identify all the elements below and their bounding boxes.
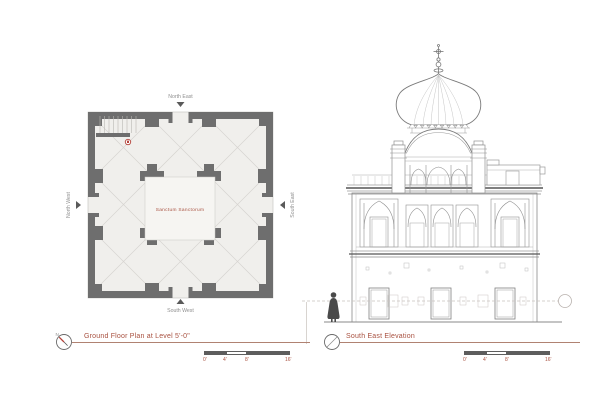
scale-segment bbox=[226, 351, 248, 355]
plan-title: Ground Floor Plan at Level 5'-0" bbox=[84, 333, 190, 340]
elevation-drawing bbox=[300, 25, 600, 330]
architectural-sheet: Sanctum Sanctorum North East South West … bbox=[0, 0, 600, 400]
scale-segment bbox=[486, 351, 508, 355]
scale-tick: 16' bbox=[545, 357, 552, 363]
north-east-arrow-icon bbox=[177, 102, 185, 107]
north-letter: N bbox=[56, 332, 59, 337]
scale-segment bbox=[204, 351, 226, 355]
scale-tick: 8' bbox=[505, 357, 509, 363]
plan-label-south-west: South West bbox=[167, 308, 194, 314]
plan-label-south-east: South East bbox=[290, 192, 296, 218]
scale-tick: 8' bbox=[245, 357, 249, 363]
floor-plan-drawing: Sanctum Sanctorum North East South West … bbox=[40, 85, 310, 330]
dome-pavilion bbox=[390, 45, 487, 194]
human-figure bbox=[327, 292, 339, 322]
elevation-title-underline bbox=[340, 342, 580, 343]
sanctum-label: Sanctum Sanctorum bbox=[156, 207, 205, 213]
north-west-arrow-icon bbox=[76, 201, 81, 209]
rooftop-structure bbox=[487, 160, 545, 185]
match-line bbox=[306, 302, 307, 344]
level-marker-icon bbox=[559, 295, 572, 308]
scale-tick: 0' bbox=[203, 357, 207, 363]
scale-segment bbox=[507, 351, 550, 355]
plan-title-underline bbox=[72, 342, 310, 343]
scale-bar-elevation: 0' 4' 8' 16' bbox=[464, 351, 556, 365]
elevation-title: South East Elevation bbox=[346, 333, 415, 340]
south-east-arrow-icon bbox=[280, 201, 285, 209]
scale-tick: 4' bbox=[483, 357, 487, 363]
scale-tick: 0' bbox=[463, 357, 467, 363]
lotus-petal-band bbox=[409, 125, 468, 129]
scale-segment bbox=[247, 351, 290, 355]
scale-tick: 4' bbox=[223, 357, 227, 363]
south-west-arrow-icon bbox=[177, 299, 185, 304]
plan-label-north-east: North East bbox=[168, 94, 193, 100]
scale-bar-plan: 0' 4' 8' 16' bbox=[204, 351, 296, 365]
scale-tick: 16' bbox=[285, 357, 292, 363]
plan-label-north-west: North West bbox=[66, 192, 72, 218]
finial bbox=[434, 45, 444, 74]
scale-segment bbox=[464, 351, 486, 355]
red-location-marker-icon bbox=[125, 139, 130, 144]
